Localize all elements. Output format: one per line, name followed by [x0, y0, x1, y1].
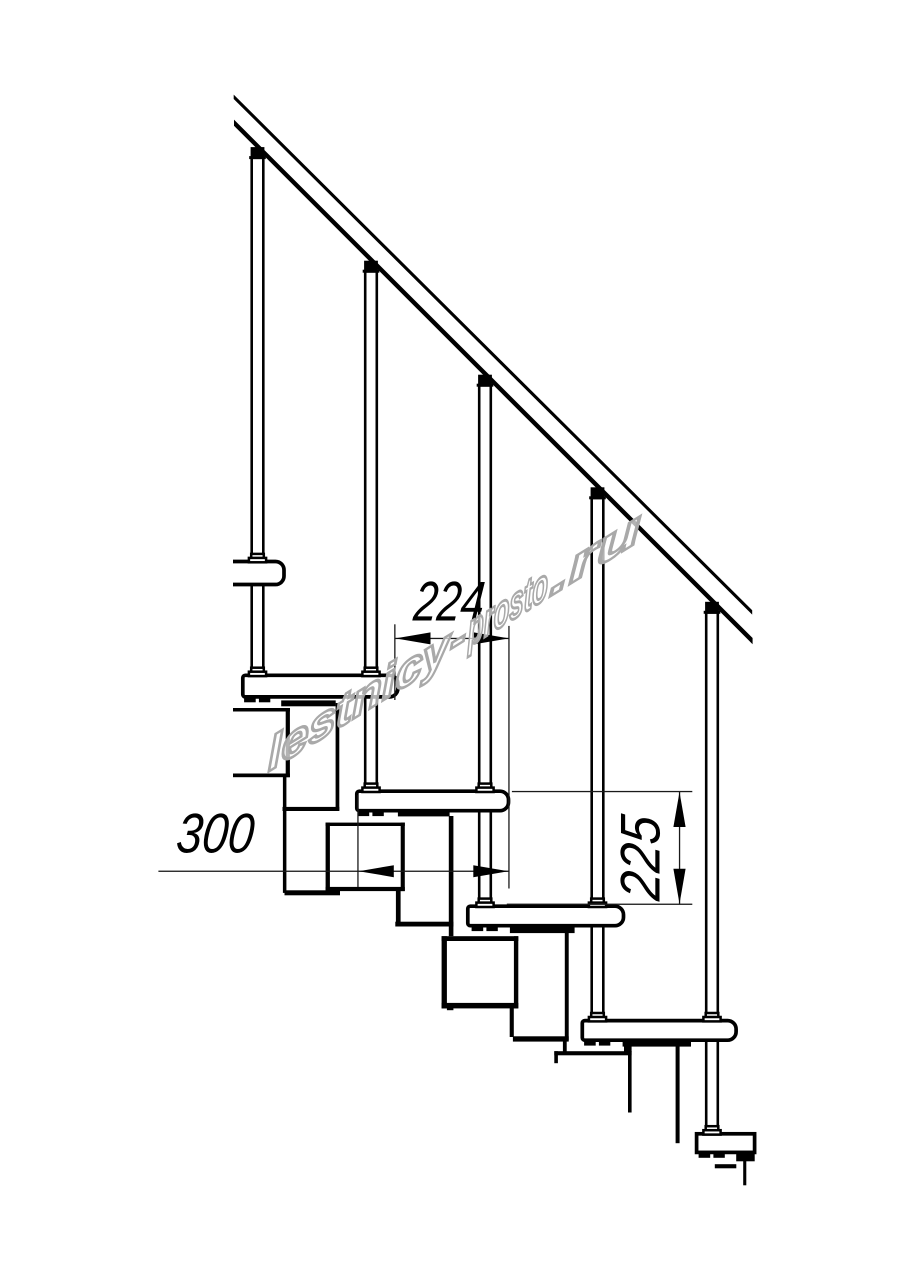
svg-text:300: 300 — [174, 802, 258, 865]
svg-text:225: 225 — [609, 811, 672, 903]
